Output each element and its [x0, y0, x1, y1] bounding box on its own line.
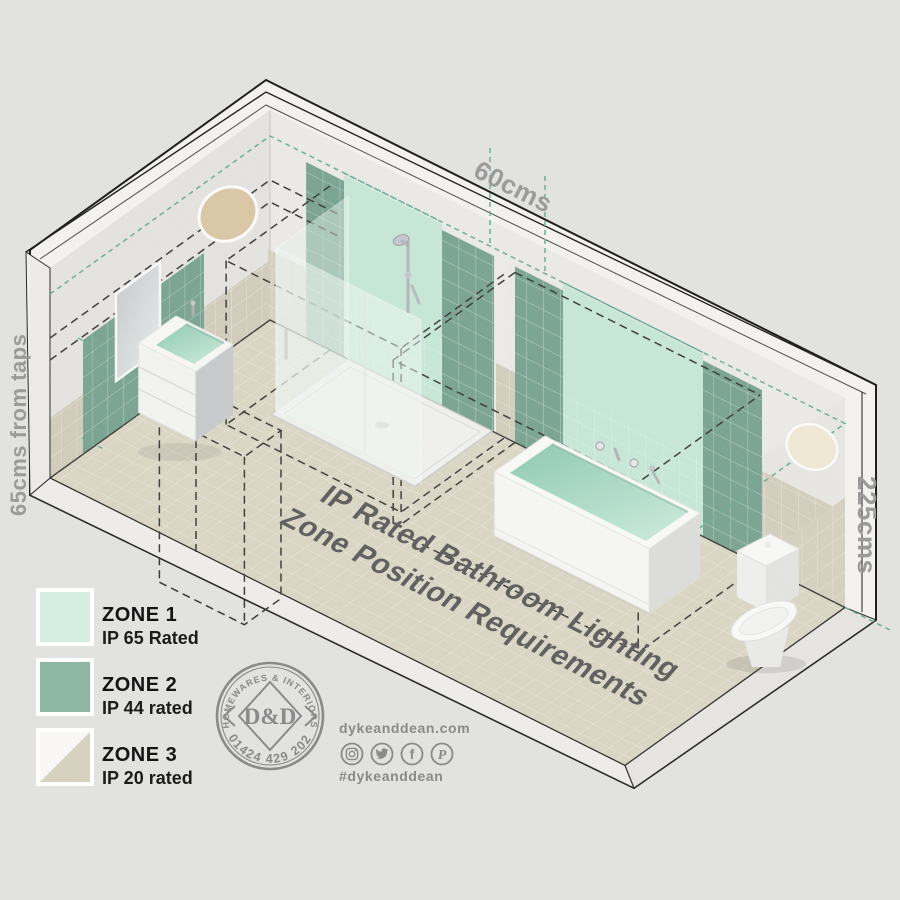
hashtag-text: #dykeanddean [339, 768, 443, 784]
dyke-and-dean-stamp-logo: HOMEWARES & INTERIORS 01424 429 202 D&D [217, 663, 323, 769]
pinterest-glyph: P [438, 748, 447, 763]
stamp-monogram: D&D [244, 704, 296, 729]
zone1-label: ZONE 1 [102, 604, 177, 626]
zone3-rating: IP 20 rated [102, 768, 193, 788]
pinterest-icon: P [432, 744, 453, 765]
zone2-rating: IP 44 rated [102, 698, 193, 718]
zone1-rating: IP 65 Rated [102, 628, 199, 648]
zone3-label: ZONE 3 [102, 744, 177, 766]
zone2-swatch [38, 660, 92, 714]
website-text: dykeanddean.com [339, 720, 470, 736]
bathroom-isometric-scene: 60cms 65cms from taps 225cms IP Rated Ba… [0, 0, 900, 900]
bathroom-zones-infographic: 60cms 65cms from taps 225cms IP Rated Ba… [0, 0, 900, 900]
social-block: dykeanddean.com f P #dykeanddean [339, 720, 470, 784]
facebook-glyph: f [410, 746, 415, 762]
twitter-icon [372, 744, 393, 765]
zone2-label: ZONE 2 [102, 674, 177, 696]
instagram-icon [342, 744, 363, 765]
zone-legend: ZONE 1 IP 65 Rated ZONE 2 IP 44 rated ZO… [38, 590, 199, 788]
legend-item-zone2: ZONE 2 IP 44 rated [38, 660, 193, 718]
facebook-icon: f [402, 744, 423, 765]
legend-item-zone1: ZONE 1 IP 65 Rated [38, 590, 199, 648]
dim-right-label: 225cms [852, 476, 882, 574]
dim-left-label: 65cms from taps [6, 334, 31, 516]
legend-item-zone3: ZONE 3 IP 20 rated [38, 730, 193, 788]
zone1-swatch [38, 590, 92, 644]
